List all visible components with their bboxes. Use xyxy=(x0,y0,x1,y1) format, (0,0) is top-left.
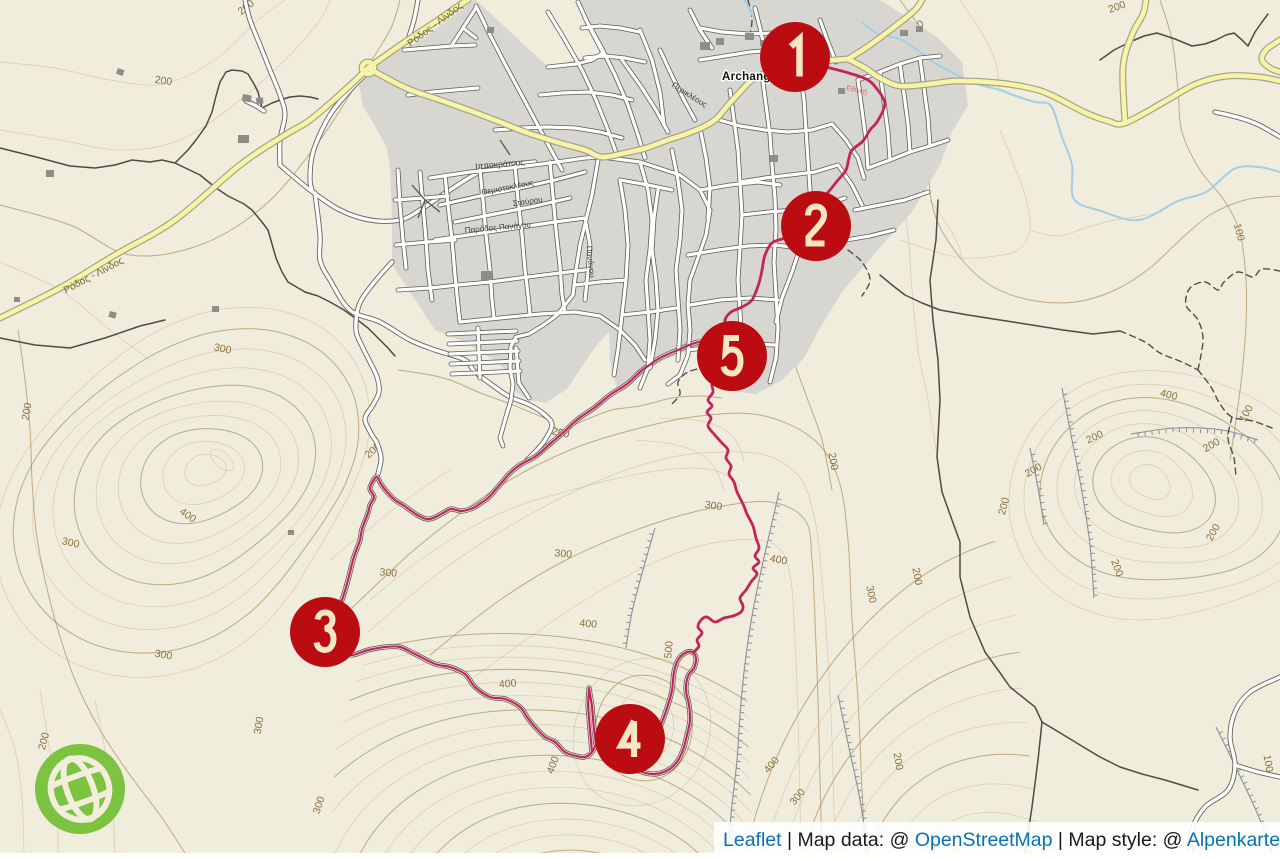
svg-text:300: 300 xyxy=(554,547,573,560)
svg-text:400: 400 xyxy=(498,677,517,690)
svg-text:300: 300 xyxy=(704,499,723,513)
svg-text:500: 500 xyxy=(662,640,675,659)
svg-text:Leaflet | Map data: @ OpenStre: Leaflet | Map data: @ OpenStreetMap | Ma… xyxy=(723,829,1280,851)
svg-text:400: 400 xyxy=(579,617,598,630)
svg-text:200: 200 xyxy=(154,74,173,88)
svg-text:300: 300 xyxy=(379,566,398,579)
